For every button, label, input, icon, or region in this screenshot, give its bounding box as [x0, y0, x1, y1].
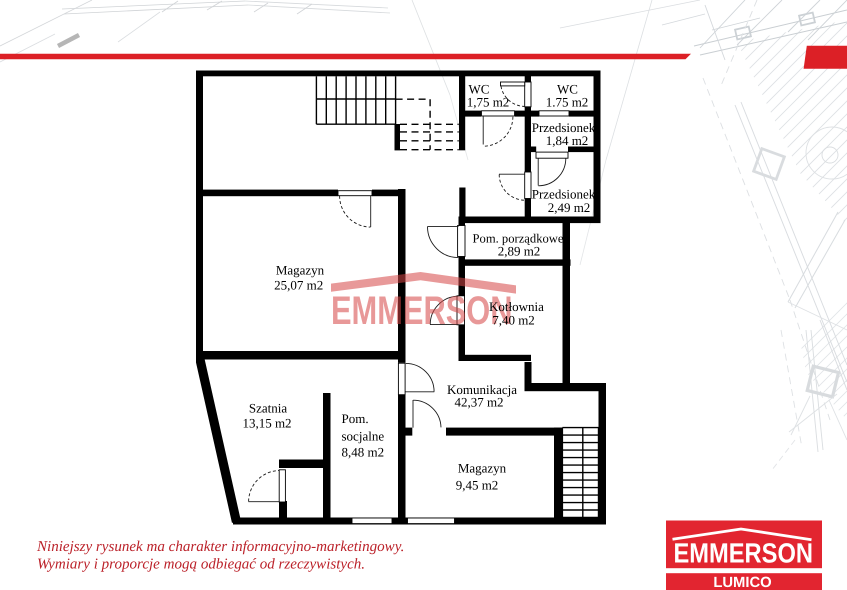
- svg-text:42,37 m2: 42,37 m2: [454, 395, 503, 410]
- svg-text:7,40 m2: 7,40 m2: [492, 313, 535, 328]
- svg-text:1,75 m2: 1,75 m2: [467, 95, 510, 110]
- svg-text:2,49 m2: 2,49 m2: [548, 200, 591, 215]
- svg-text:Wymiary i proporcje mogą odbie: Wymiary i proporcje mogą odbiegać od rze…: [37, 557, 365, 573]
- svg-text:Niniejszy rysunek ma charakter: Niniejszy rysunek ma charakter informacy…: [36, 539, 404, 555]
- svg-text:EMMERSON: EMMERSON: [674, 537, 814, 568]
- svg-text:EMMERSON: EMMERSON: [331, 289, 513, 333]
- svg-text:Pom.: Pom.: [342, 411, 369, 426]
- svg-text:1,84 m2: 1,84 m2: [546, 133, 589, 148]
- svg-text:8,48 m2: 8,48 m2: [342, 445, 385, 460]
- svg-text:13,15 m2: 13,15 m2: [242, 416, 291, 431]
- svg-text:LUMICO: LUMICO: [713, 575, 771, 590]
- svg-text:1.75 m2: 1.75 m2: [546, 95, 589, 110]
- svg-text:Magazyn: Magazyn: [276, 263, 325, 278]
- svg-text:2,89 m2: 2,89 m2: [498, 244, 541, 259]
- svg-text:Magazyn: Magazyn: [458, 461, 507, 476]
- svg-text:Szatnia: Szatnia: [249, 401, 287, 416]
- svg-text:socjalne: socjalne: [342, 429, 385, 444]
- svg-text:9,45 m2: 9,45 m2: [456, 478, 499, 493]
- svg-text:25,07 m2: 25,07 m2: [274, 278, 323, 293]
